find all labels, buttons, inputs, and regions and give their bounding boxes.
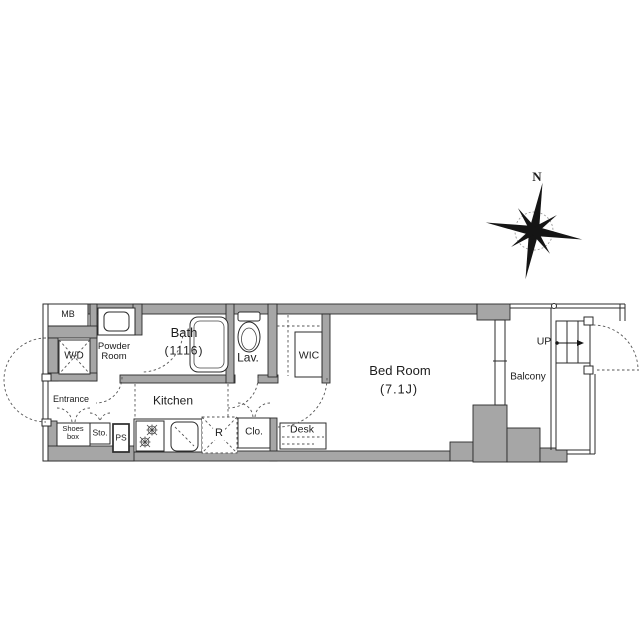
label-bedroom: Bed Room — [369, 364, 430, 378]
kitchen-counter — [134, 419, 202, 452]
label-powder-room: Powder Room — [98, 342, 130, 363]
label-up: UP — [537, 336, 552, 347]
vanity-sink — [98, 308, 135, 335]
bedroom-door-swing — [278, 378, 327, 427]
label-lav: Lav. — [237, 352, 259, 365]
label-sto: Sto. — [92, 428, 107, 437]
label-balcony: Balcony — [510, 373, 546, 384]
entrance-door-swing — [4, 338, 46, 422]
storage-door-swing — [90, 413, 110, 423]
bedroom-window — [495, 320, 505, 405]
label-bath-size: (1116) — [165, 345, 204, 358]
label-refrigerator: R — [213, 428, 225, 440]
floor-plan-drawing — [0, 0, 639, 640]
label-bath: Bath — [171, 326, 198, 340]
label-kitchen: Kitchen — [153, 395, 193, 408]
stairs-door-swing — [593, 325, 639, 370]
label-bedroom-size: (7.1J) — [380, 383, 418, 397]
closet-door-swing — [238, 403, 270, 418]
compass-rose — [477, 174, 591, 288]
label-clo: Clo. — [245, 428, 263, 439]
shoes-box-door-swing — [57, 408, 90, 423]
label-mb: MB — [61, 310, 75, 320]
toilet — [238, 312, 260, 352]
label-wd: W/D — [64, 352, 83, 363]
label-shoes-line2: box — [62, 433, 83, 441]
label-ps: PS — [115, 433, 126, 442]
staircase — [556, 321, 590, 450]
label-powder-line2: Room — [98, 352, 130, 362]
label-entrance: Entrance — [53, 395, 89, 405]
compass-north-label: N — [532, 170, 541, 184]
label-shoes-box: Shoes box — [62, 425, 83, 441]
floor-plan-page: N MB W/D Powder Room Bath (1116) Lav. WI… — [0, 0, 639, 640]
powder-door-swing — [96, 377, 122, 403]
label-wic: WIC — [299, 350, 319, 361]
label-desk: Desk — [290, 424, 314, 435]
